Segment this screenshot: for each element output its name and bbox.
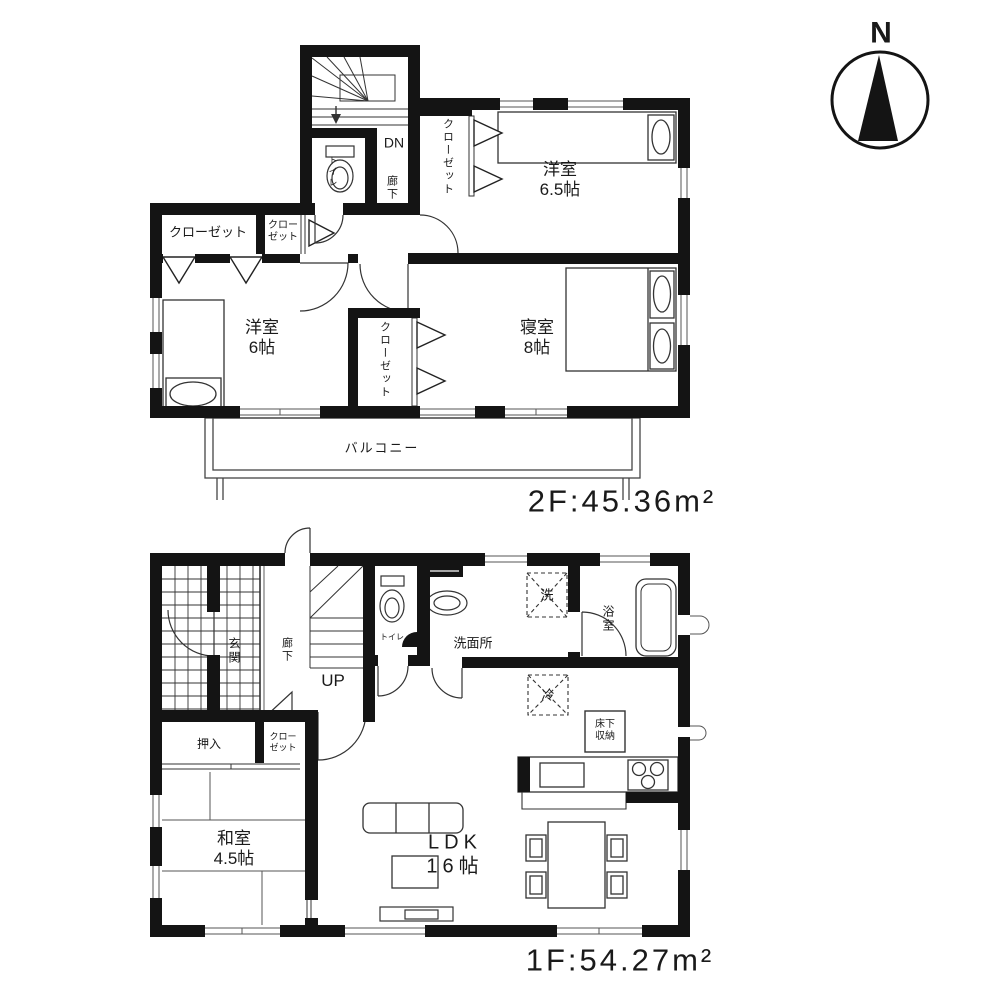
sofa-icon: [363, 803, 463, 833]
bed-single-2f-yoshitsu65: [498, 112, 676, 163]
toilet-label-1f: トイレ: [380, 632, 404, 641]
closet-label-2f-right: クローゼット: [442, 118, 453, 196]
compass: [832, 52, 928, 148]
bed-double-2f-shinshitsu: [566, 268, 676, 371]
compass-needle-icon: [858, 55, 898, 141]
floor1-area-label: 1F:54.27m²: [526, 943, 715, 980]
fridge-label: 冷: [541, 687, 554, 702]
oshiire-label: 押入: [197, 737, 221, 751]
stairs-down-label: DN: [384, 135, 404, 152]
room-label-ldk: LDK 16帖: [426, 831, 483, 878]
tv-board-icon: [380, 907, 453, 921]
stairs-up-label: UP: [321, 671, 345, 691]
room-label-2f-yoshitsu-6-5: 洋室 6.5帖: [540, 160, 581, 200]
stairs-2f: [312, 57, 408, 125]
hallway-label-2f: 廊下: [386, 175, 397, 201]
balcony-label: バルコニー: [345, 440, 420, 455]
dining-set-icon: [526, 822, 627, 908]
compass-north-label: N: [870, 15, 892, 50]
floor2-area-label: 2F:45.36m²: [528, 484, 717, 521]
hallway-label-1f: 廊下: [281, 637, 292, 663]
closet-label-2f-small: クロー ゼット: [268, 220, 298, 244]
bathtub-icon: [636, 579, 676, 656]
genkan-label: 玄関: [228, 637, 240, 665]
floorplan-canvas: N 洋室 6.5帖 寝室 8帖 洋室 6帖 クローゼット クロー ゼット クロー…: [0, 0, 1000, 1000]
room-label-2f-yoshitsu-6: 洋室 6帖: [245, 318, 279, 358]
underfloor-storage-label: 床下 収納: [595, 719, 615, 743]
floorplan-drawing: [0, 0, 1000, 1000]
closet-label-1f: クロー ゼット: [269, 731, 296, 752]
bath-label: 浴室: [602, 605, 614, 633]
room-label-2f-shinshitsu: 寝室 8帖: [520, 318, 554, 358]
closet-label-2f-mid: クローゼット: [379, 321, 390, 399]
floor2-plan: [150, 45, 690, 500]
bed-single-2f-yoshitsu6: [163, 300, 224, 413]
washroom-label: 洗面所: [453, 635, 492, 650]
washer-label: 洗: [540, 587, 553, 602]
room-label-washitsu: 和室 4.5帖: [214, 829, 255, 869]
toilet-label-2f: トイレ: [328, 156, 337, 189]
closet-label-2f-left: クローゼット: [169, 224, 247, 239]
